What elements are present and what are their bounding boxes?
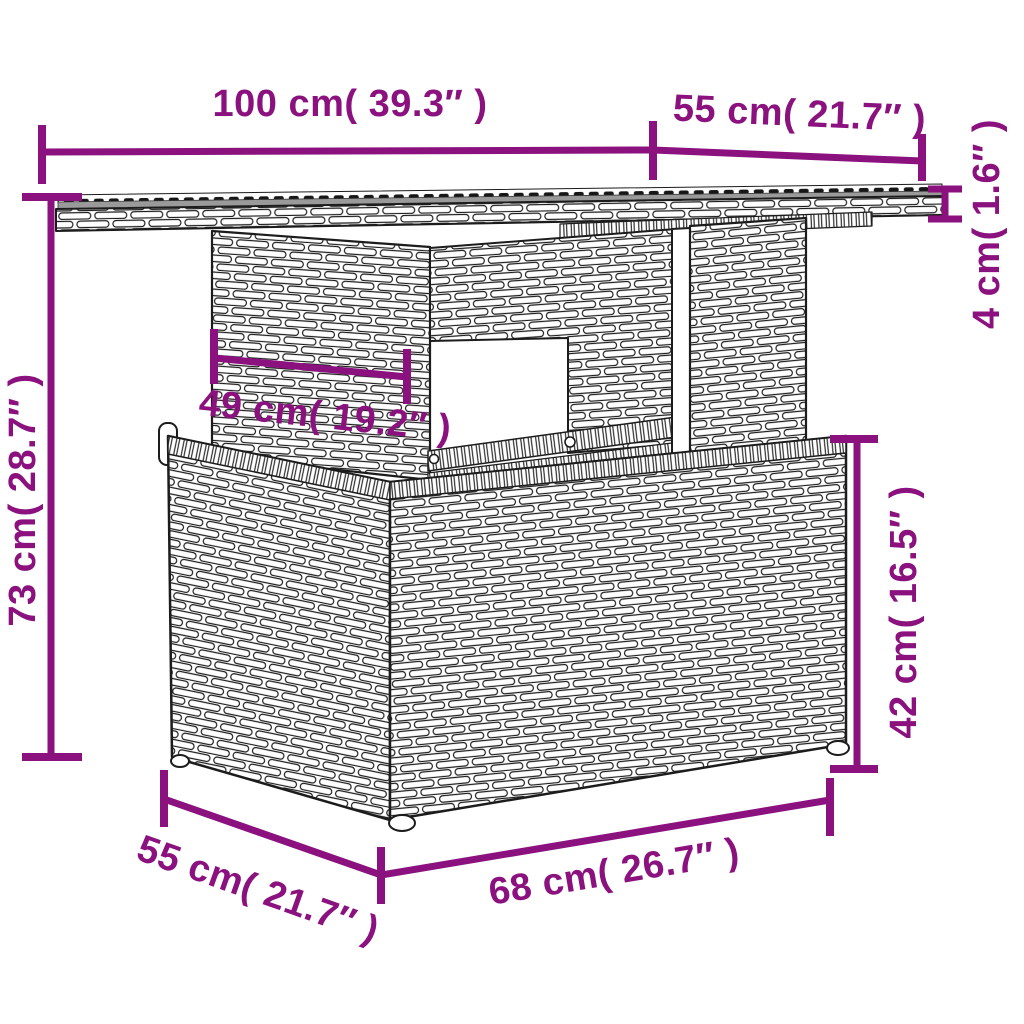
storage-base	[159, 423, 849, 831]
apron-panel	[430, 229, 676, 453]
dim-label-tabletop-thickness: 4 cm( 1.6″ )	[966, 119, 1008, 329]
tabletop	[56, 184, 944, 238]
dimension-diagram-canvas: 100 cm( 39.3″ ) 55 cm( 21.7″ ) 4 cm( 1.6…	[0, 0, 1024, 1024]
rail-knob	[565, 437, 575, 447]
dim-label-tabletop-depth: 55 cm( 21.7″ )	[672, 88, 927, 141]
right-leg-post	[672, 228, 690, 455]
dim-tabletop-thickness: 4 cm( 1.6″ )	[928, 119, 1008, 329]
dim-tabletop-width: 100 cm( 39.3″ )	[42, 83, 653, 184]
base-foot	[827, 741, 849, 755]
table-illustration	[56, 184, 944, 831]
dim-label-base-height: 42 cm( 16.5″ )	[883, 485, 925, 738]
dim-label-base-width: 68 cm( 26.7″ )	[486, 831, 743, 914]
dim-tabletop-depth: 55 cm( 21.7″ )	[653, 88, 927, 181]
dim-label-total-height: 73 cm( 28.7″ )	[2, 373, 44, 626]
base-foot	[389, 815, 415, 831]
dim-line	[653, 150, 922, 161]
dim-line	[42, 150, 653, 152]
base-right-face	[390, 436, 846, 820]
right-leg-panel	[690, 218, 806, 452]
product-dimension-image: 100 cm( 39.3″ ) 55 cm( 21.7″ ) 4 cm( 1.6…	[0, 0, 1024, 1024]
base-foot	[171, 755, 189, 767]
dim-total-height: 73 cm( 28.7″ )	[2, 197, 82, 757]
dim-label-tabletop-width: 100 cm( 39.3″ )	[213, 83, 488, 125]
rail-knob	[430, 455, 439, 464]
dim-label-base-depth: 55 cm( 21.7″ )	[132, 828, 385, 952]
